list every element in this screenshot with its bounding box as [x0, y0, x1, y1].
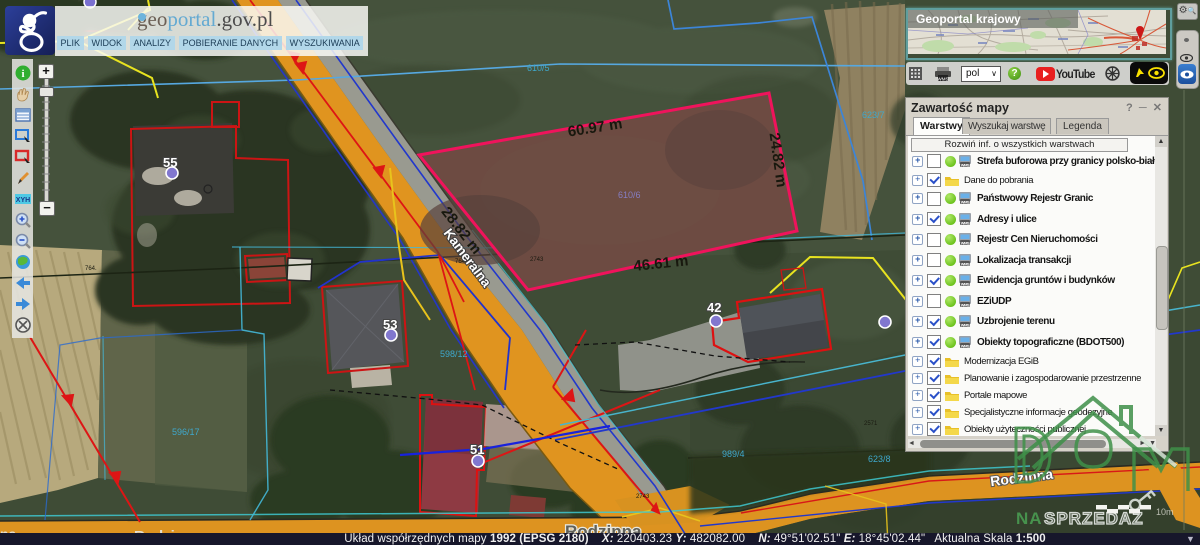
svg-text:2743: 2743: [530, 257, 544, 263]
svg-text:623/8: 623/8: [868, 454, 891, 464]
svg-text:i: i: [21, 68, 24, 80]
svg-text:42: 42: [707, 300, 721, 315]
svg-text:2571: 2571: [864, 421, 878, 427]
svg-text:989/4: 989/4: [722, 449, 745, 459]
svg-text:WMS: WMS: [961, 302, 970, 307]
svg-text:WMS: WMS: [938, 76, 949, 81]
svg-text:596/17: 596/17: [172, 427, 200, 437]
svg-text:WMS: WMS: [961, 343, 970, 348]
svg-text:610/6: 610/6: [618, 190, 641, 200]
svg-text:610/5: 610/5: [527, 63, 550, 73]
svg-text:598/12: 598/12: [440, 349, 468, 359]
svg-text:WMS: WMS: [961, 323, 970, 328]
svg-text:623/7: 623/7: [862, 110, 885, 120]
svg-text:764.: 764.: [85, 266, 97, 272]
svg-text:XYH: XYH: [16, 197, 30, 204]
svg-text:2743: 2743: [636, 494, 650, 500]
svg-text:Geoportal krajowy: Geoportal krajowy: [916, 12, 1021, 26]
svg-text:WMS: WMS: [961, 261, 970, 266]
svg-text:WMS: WMS: [961, 200, 970, 205]
svg-text:WMS: WMS: [961, 162, 970, 167]
svg-text:WMS: WMS: [961, 282, 970, 287]
svg-text:WMS: WMS: [961, 241, 970, 246]
svg-text:WMS: WMS: [961, 220, 970, 225]
